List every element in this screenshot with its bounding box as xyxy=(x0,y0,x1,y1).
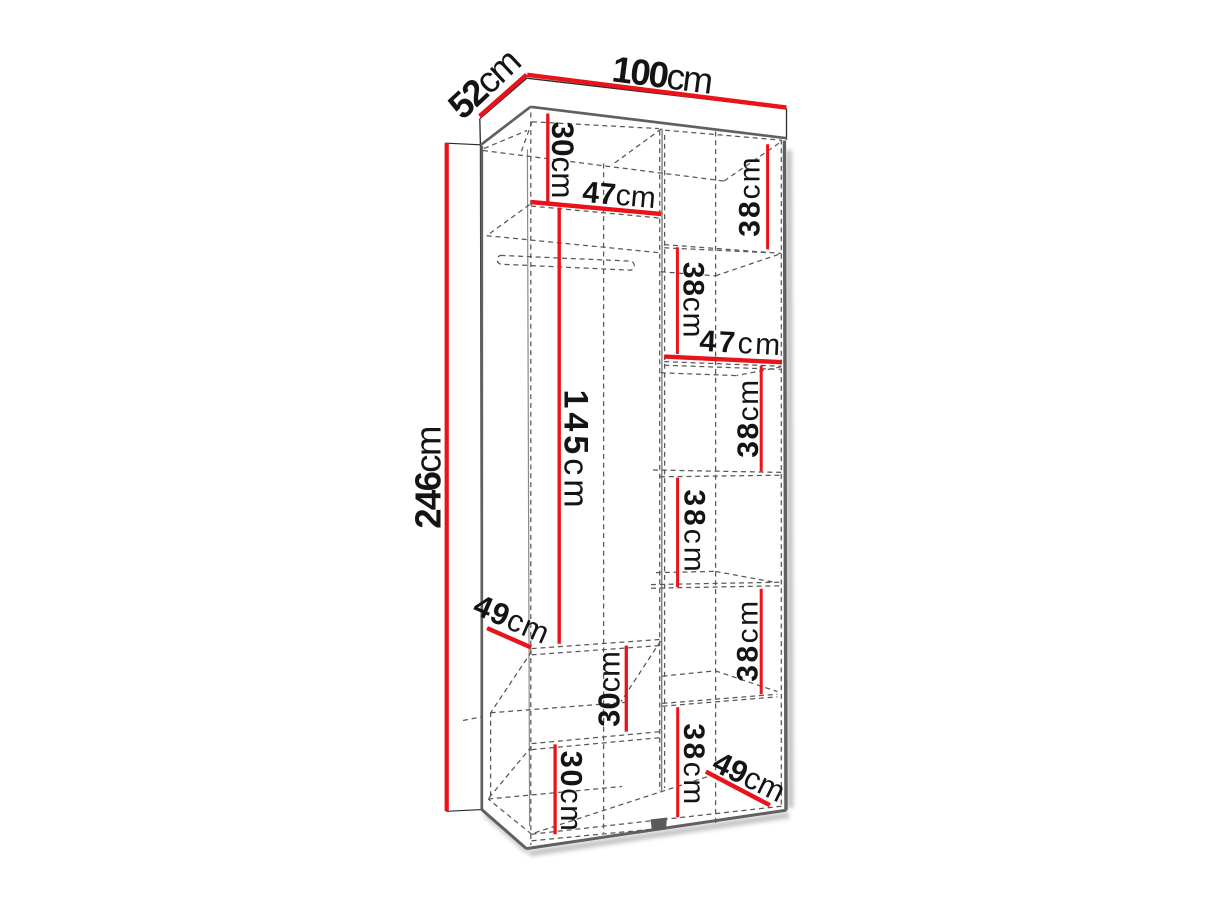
svg-text:47cm: 47cm xyxy=(699,325,784,362)
svg-text:38cm: 38cm xyxy=(732,378,765,457)
svg-text:38cm: 38cm xyxy=(731,598,764,681)
svg-text:30cm: 30cm xyxy=(554,751,589,833)
svg-text:30cm: 30cm xyxy=(545,121,581,198)
svg-text:145cm: 145cm xyxy=(557,389,595,511)
svg-text:30cm: 30cm xyxy=(592,651,627,727)
svg-text:47cm: 47cm xyxy=(581,176,657,215)
svg-text:246cm: 246cm xyxy=(407,427,448,529)
svg-text:38cm: 38cm xyxy=(733,155,766,236)
svg-text:38cm: 38cm xyxy=(677,723,710,806)
svg-text:38cm: 38cm xyxy=(678,489,711,574)
